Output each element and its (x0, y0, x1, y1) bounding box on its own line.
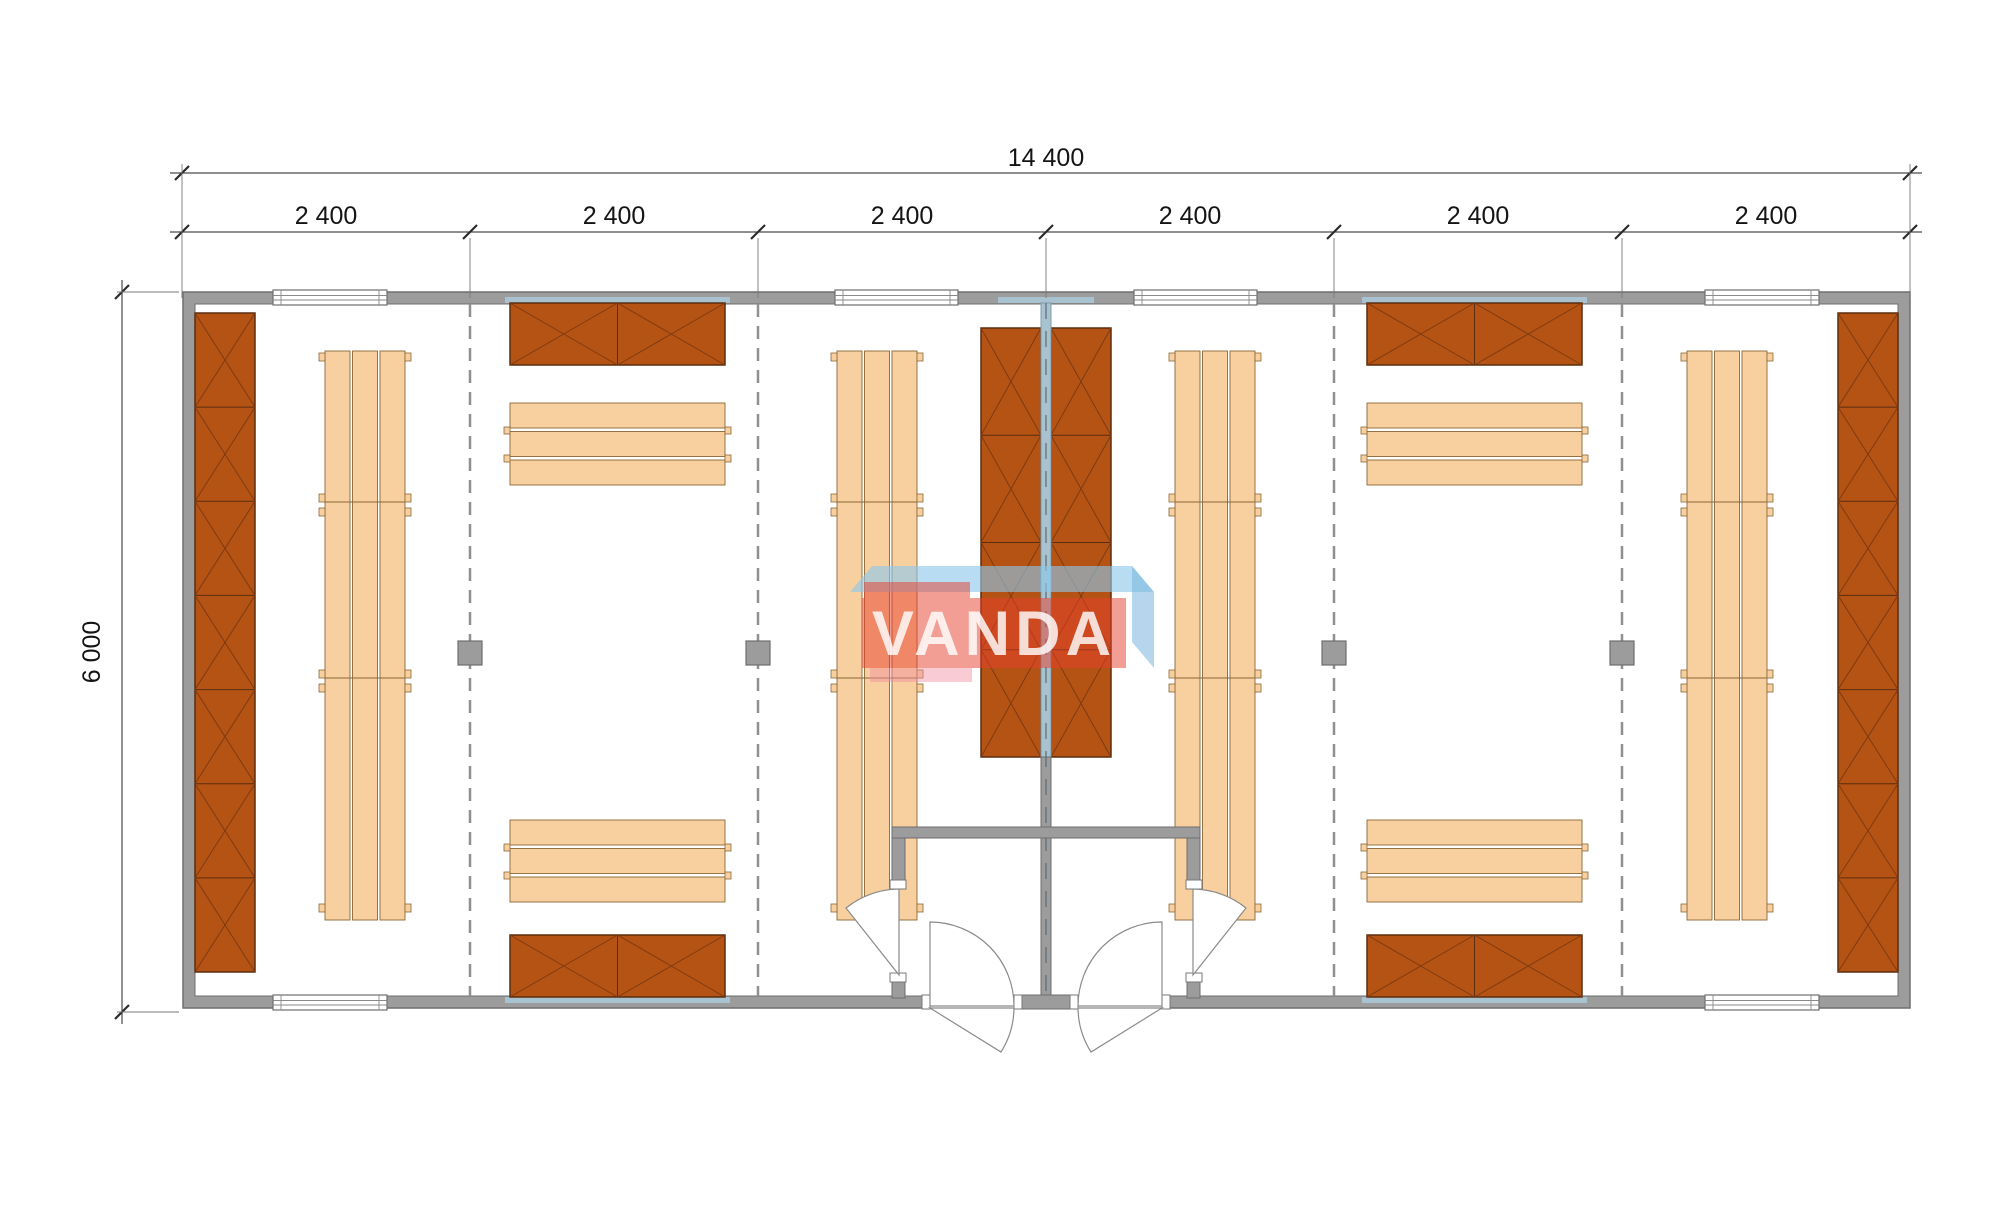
bench-foot (725, 872, 731, 879)
bench-foot (1767, 494, 1773, 502)
bench-foot (319, 494, 325, 502)
bench-plank (1367, 403, 1582, 428)
bench-foot (1582, 455, 1588, 462)
bench-foot (1169, 494, 1175, 502)
bench-foot (1255, 904, 1261, 912)
bench-foot (1681, 904, 1687, 912)
structural-column (458, 641, 482, 665)
floor-plan-drawing (183, 290, 1910, 1052)
bench-plank (1742, 351, 1767, 920)
module-width-label: 2 400 (871, 202, 934, 230)
window (273, 995, 387, 1010)
floor-plan-canvas: 14 400 2 400 2 400 2 400 2 400 2 400 2 4… (0, 0, 2000, 1226)
bench-plank (510, 403, 725, 428)
bench-foot (725, 844, 731, 851)
bench-foot (405, 508, 411, 516)
bench-foot (917, 508, 923, 516)
bench-foot (831, 508, 837, 516)
bench-foot (1767, 684, 1773, 692)
bench-plank (353, 351, 378, 920)
bench-foot (1255, 508, 1261, 516)
bench-foot (405, 494, 411, 502)
bench-foot (1169, 904, 1175, 912)
bench-foot (831, 353, 837, 361)
sauna-wall-strip (1362, 997, 1587, 1003)
bench-foot (405, 684, 411, 692)
bench-foot (831, 670, 837, 678)
bench-foot (917, 353, 923, 361)
bench-foot (1169, 670, 1175, 678)
sauna-wall-strip (1362, 297, 1587, 303)
bench-foot (319, 508, 325, 516)
bench-plank (1367, 849, 1582, 874)
bench-foot (1255, 494, 1261, 502)
bench-foot (1681, 494, 1687, 502)
bench-plank (1687, 351, 1712, 920)
bench-plank (1367, 877, 1582, 902)
watermark-text: VANDA (872, 599, 1116, 669)
bench-foot (917, 904, 923, 912)
vestibule-wall (892, 982, 905, 998)
watermark-shape (870, 668, 972, 682)
bench-plank (510, 877, 725, 902)
vestibule-wall (1187, 838, 1200, 880)
door-swing (1078, 1008, 1162, 1052)
bench-foot (831, 684, 837, 692)
bench-foot (319, 684, 325, 692)
bench-foot (831, 494, 837, 502)
sauna-wall-strip (505, 997, 730, 1003)
door-swing (930, 1008, 1014, 1052)
bench-plank (1203, 351, 1228, 920)
door-jamb (1186, 880, 1202, 889)
vestibule-wall (1022, 995, 1070, 1009)
overall-width-label: 14 400 (1008, 144, 1084, 172)
bench-foot (1169, 353, 1175, 361)
bench-plank (510, 432, 725, 457)
bench-foot (1361, 427, 1367, 434)
door-jamb (922, 995, 930, 1009)
bench-foot (1361, 455, 1367, 462)
bench-foot (1361, 872, 1367, 879)
door-jamb (1014, 995, 1022, 1009)
bench-foot (917, 494, 923, 502)
bench-foot (1255, 353, 1261, 361)
bench-foot (1582, 427, 1588, 434)
bench-plank (1367, 820, 1582, 845)
bench-foot (319, 670, 325, 678)
window (1705, 995, 1819, 1010)
bench-plank (837, 351, 862, 920)
bench-foot (405, 353, 411, 361)
module-width-label: 2 400 (1159, 202, 1222, 230)
bench-foot (1169, 684, 1175, 692)
bench-plank (510, 849, 725, 874)
window (1134, 290, 1257, 305)
vestibule-wall (892, 827, 1200, 838)
bench-foot (1681, 684, 1687, 692)
door-jamb (890, 880, 906, 889)
bench-plank (510, 460, 725, 485)
bench-foot (1767, 508, 1773, 516)
door-jamb (1070, 995, 1078, 1009)
bench-foot (1582, 844, 1588, 851)
bench-foot (1767, 670, 1773, 678)
bench-foot (1255, 670, 1261, 678)
overall-height-label: 6 000 (78, 621, 106, 684)
floor-plan-page: 14 400 2 400 2 400 2 400 2 400 2 400 2 4… (0, 0, 2000, 1226)
bench-foot (504, 872, 510, 879)
module-width-label: 2 400 (1447, 202, 1510, 230)
bench-foot (504, 455, 510, 462)
bench-plank (1367, 432, 1582, 457)
sauna-wall-strip (505, 297, 730, 303)
bench-foot (725, 455, 731, 462)
bench-foot (1767, 353, 1773, 361)
structural-column (1610, 641, 1634, 665)
bench-foot (504, 427, 510, 434)
bench-foot (1169, 508, 1175, 516)
bench-plank (1367, 460, 1582, 485)
vestibule-wall (1187, 982, 1200, 998)
bench-foot (725, 427, 731, 434)
bench-foot (1255, 684, 1261, 692)
module-width-label: 2 400 (295, 202, 358, 230)
bench-foot (405, 904, 411, 912)
bench-foot (1681, 670, 1687, 678)
bench-foot (831, 904, 837, 912)
vestibule-wall (892, 838, 905, 880)
bench-foot (319, 353, 325, 361)
module-width-label: 2 400 (583, 202, 646, 230)
bench-foot (1681, 353, 1687, 361)
bench-plank (1715, 351, 1740, 920)
module-width-label: 2 400 (1735, 202, 1798, 230)
window (273, 290, 387, 305)
bench-foot (405, 670, 411, 678)
structural-column (746, 641, 770, 665)
bench-foot (1361, 844, 1367, 851)
bench-foot (504, 844, 510, 851)
door-jamb (1162, 995, 1170, 1009)
bench-foot (319, 904, 325, 912)
window (1705, 290, 1819, 305)
bench-plank (380, 351, 405, 920)
watermark-shape (864, 582, 970, 598)
bench-foot (1767, 904, 1773, 912)
structural-column (1322, 641, 1346, 665)
window (835, 290, 958, 305)
bench-foot (1681, 508, 1687, 516)
bench-plank (1230, 351, 1255, 920)
bench-plank (325, 351, 350, 920)
bench-foot (917, 684, 923, 692)
bench-foot (1582, 872, 1588, 879)
bench-plank (510, 820, 725, 845)
